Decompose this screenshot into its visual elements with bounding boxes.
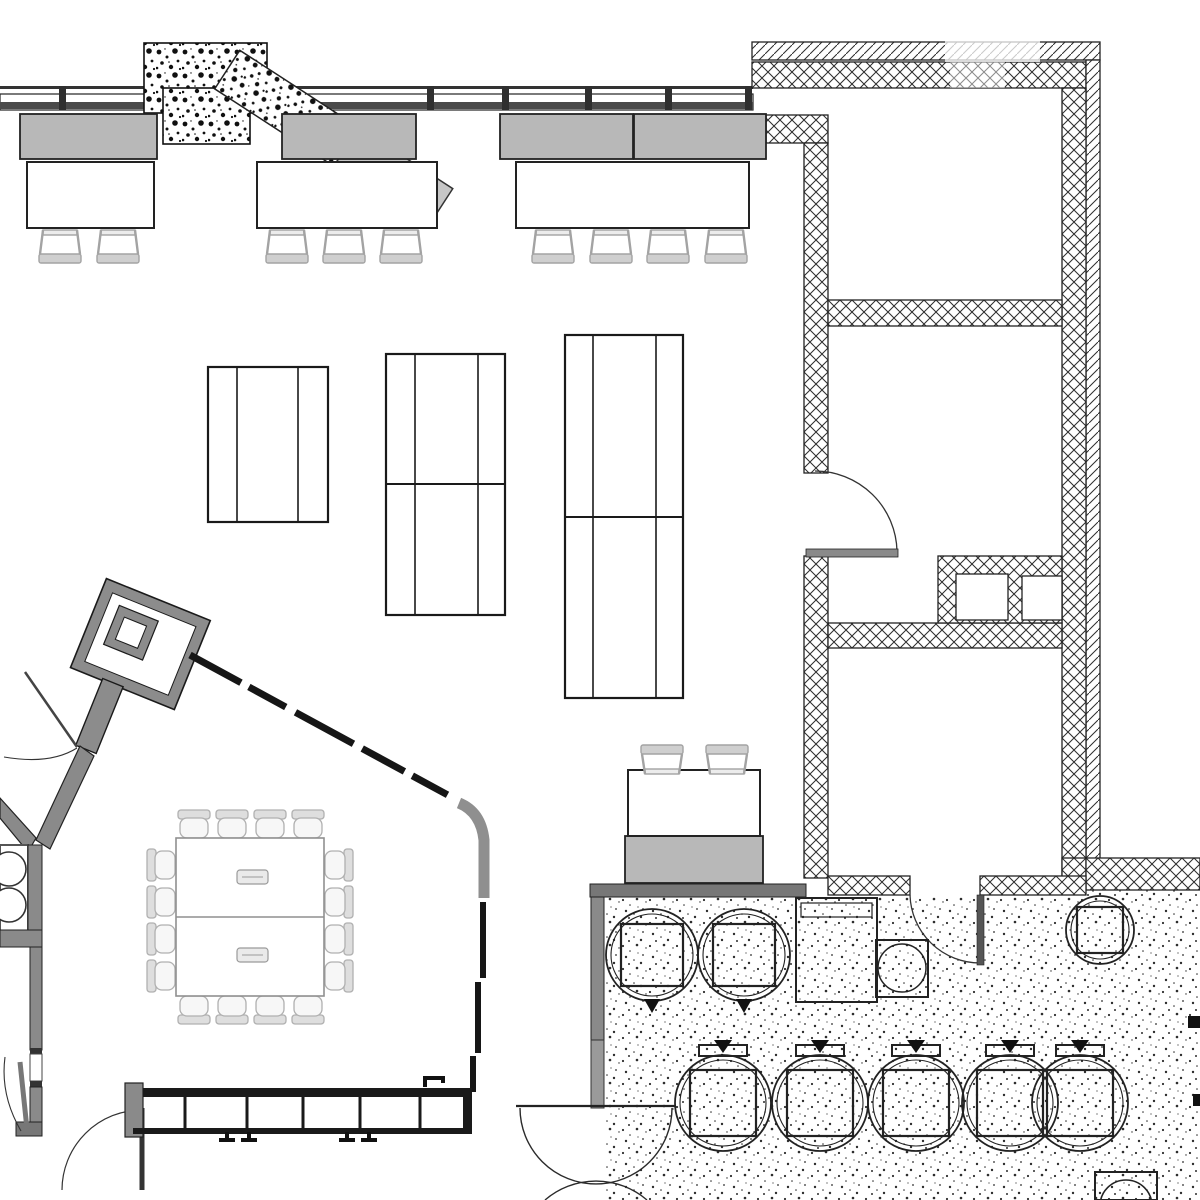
wall-fade-patch-2: [950, 62, 1005, 88]
desk-chair: [705, 230, 747, 263]
wall-stub-top: [766, 115, 828, 143]
chair-backrest: [97, 254, 139, 263]
desk-chair: [323, 230, 365, 263]
partition-curve: [459, 803, 484, 898]
desk-chair: [590, 230, 632, 263]
chair-seat-edge: [709, 230, 743, 235]
chair-seat-edge: [327, 230, 361, 235]
edge-mark: [1188, 1016, 1200, 1028]
desk-chair: [266, 230, 308, 263]
conference-chair: [147, 849, 175, 881]
conference-chair: [147, 886, 175, 918]
edge-mark: [1193, 1094, 1200, 1106]
window-mullion-tick: [745, 86, 752, 110]
wall-right-outer-leaf: [1086, 60, 1100, 860]
wall-divider-1: [828, 300, 1062, 326]
chair-seat-edge: [101, 230, 135, 235]
chair-seat: [155, 925, 175, 953]
sidelight-glass: [30, 1054, 42, 1081]
niche-wall-right: [28, 845, 42, 932]
desk-chair: [706, 745, 748, 774]
chair-backrest: [266, 254, 308, 263]
cabinet: [634, 114, 766, 159]
desk-chair: [647, 230, 689, 263]
conference-chair: [325, 960, 353, 992]
vestibule-door: [4, 672, 77, 760]
conference-chair: [147, 960, 175, 992]
chair-seat-edge: [270, 230, 304, 235]
chair-seat: [180, 996, 208, 1016]
window-mullion-tick: [665, 86, 672, 110]
vestibule-column: [44, 579, 210, 775]
wall-left-lower: [804, 556, 828, 878]
conference-chair: [325, 886, 353, 918]
conference-chair: [216, 996, 248, 1024]
left-edge-structures: [0, 845, 142, 1190]
chair-seat-edge: [645, 769, 679, 774]
top-desk-group-3: [500, 114, 766, 263]
desk-chair: [380, 230, 422, 263]
desk-table: [27, 162, 154, 228]
cabinet: [625, 836, 763, 883]
chair-seat: [155, 888, 175, 916]
work-table-outline: [208, 367, 328, 522]
duct-opening-2: [1022, 576, 1062, 620]
hall-desk-group: [625, 745, 763, 883]
window-outer-line: [0, 86, 753, 89]
chair-seat-edge: [536, 230, 570, 235]
chair-backrest: [532, 254, 574, 263]
chair-backrest: [706, 745, 748, 754]
chair-backrest: [380, 254, 422, 263]
left-wall-upper: [30, 947, 42, 1050]
fixture-circle: [0, 888, 26, 922]
chair-seat: [294, 996, 322, 1016]
door-jamb-center: [591, 1040, 604, 1108]
top-desk-group-2: [257, 114, 437, 263]
wall-top-outer-leaf: [752, 42, 1100, 60]
conference-chair: [292, 810, 324, 838]
conference-chair: [254, 996, 286, 1024]
chair-seat: [155, 851, 175, 879]
wall-right-inner-leaf: [1062, 88, 1086, 886]
desk-table: [516, 162, 749, 228]
desk-chair: [97, 230, 139, 263]
bench-back-rail: [143, 1088, 470, 1097]
window-sill-line: [0, 102, 753, 109]
chair-seat-edge: [594, 230, 628, 235]
window-mullion-tick: [59, 86, 66, 110]
desk-chair: [532, 230, 574, 263]
chair-seat: [325, 925, 345, 953]
chair-seat: [294, 818, 322, 838]
wall-fade-patch: [945, 40, 1040, 62]
salon-wall-left: [591, 897, 604, 1042]
angled-wall-segment: [36, 746, 94, 849]
chair-seat: [218, 818, 246, 838]
chair-seat-edge: [651, 230, 685, 235]
window-mullion-tick: [502, 86, 509, 110]
conference-chair: [178, 996, 210, 1024]
door-swing-room2: [815, 471, 897, 551]
chair-backrest: [641, 745, 683, 754]
column-stem: [76, 678, 123, 753]
door-leaf-left-exterior: [20, 1062, 27, 1129]
window-wall: [0, 86, 753, 110]
desk-table: [628, 770, 760, 836]
bench-hook: [425, 1078, 443, 1087]
chair-seat: [325, 888, 345, 916]
floor-plan-drawing: [0, 0, 1200, 1200]
vestibule-door-swing: [4, 748, 77, 760]
fixture-circle: [0, 852, 26, 886]
cabinet: [20, 114, 157, 159]
chair-seat-edge: [384, 230, 418, 235]
salon-wall-top: [590, 884, 806, 897]
door-leaf-room3: [977, 895, 984, 965]
chair-seat: [325, 962, 345, 990]
chair-seat-edge: [710, 769, 744, 774]
work-table-3: [565, 335, 683, 698]
bench-group: [125, 1078, 472, 1140]
chair-backrest: [39, 254, 81, 263]
window-mullion-tick: [427, 86, 434, 110]
window-mullion-tick: [585, 86, 592, 110]
conference-chair: [147, 923, 175, 955]
chair-backrest: [323, 254, 365, 263]
desk-chair: [39, 230, 81, 263]
wall-divider-2: [828, 623, 1062, 648]
chair-seat: [256, 818, 284, 838]
chair-backrest: [647, 254, 689, 263]
conference-group: [147, 810, 353, 1024]
chair-seat: [325, 851, 345, 879]
wall-top-inner-leaf: [752, 62, 1086, 88]
floor-plan-canvas: [0, 0, 1200, 1200]
vestibule-lower-walls: [0, 746, 94, 852]
conference-chair: [178, 810, 210, 838]
conference-chair: [254, 810, 286, 838]
wall-bottom-right: [1086, 858, 1200, 890]
bench-right-cap: [463, 1088, 472, 1134]
exterior-angled-wall: [0, 798, 36, 852]
wall-room3-bottom-left: [828, 876, 910, 895]
chair-seat: [256, 996, 284, 1016]
left-wall-lower: [30, 1087, 42, 1122]
conference-chair: [292, 996, 324, 1024]
chair-backrest: [705, 254, 747, 263]
partition-diagonal: [190, 655, 457, 800]
cabinet: [282, 114, 416, 159]
conference-chair: [216, 810, 248, 838]
conference-chair: [325, 849, 353, 881]
bench-front-rail: [133, 1128, 471, 1134]
chair-backrest: [590, 254, 632, 263]
sidelight-cap-top: [30, 1048, 42, 1054]
chair-seat-edge: [43, 230, 77, 235]
wall-left-upper: [804, 143, 828, 473]
door-leaf-room2: [806, 549, 898, 557]
wall-room3-bottom-right: [980, 876, 1086, 895]
niche-wall-bottom: [0, 930, 42, 947]
work-table-2: [386, 354, 505, 615]
chair-seat: [180, 818, 208, 838]
desk-chair: [641, 745, 683, 774]
interior-partition-walls: [766, 115, 1086, 895]
chair-seat: [218, 996, 246, 1016]
cabinet: [500, 114, 633, 159]
vestibule-door-leaf: [25, 672, 77, 747]
duct-opening-1: [956, 574, 1008, 620]
top-desk-group-1: [20, 114, 157, 263]
desk-table: [257, 162, 437, 228]
chair-seat: [155, 962, 175, 990]
conference-chair: [325, 923, 353, 955]
work-table-1: [208, 367, 328, 522]
sidelight-cap-bottom: [30, 1081, 42, 1087]
